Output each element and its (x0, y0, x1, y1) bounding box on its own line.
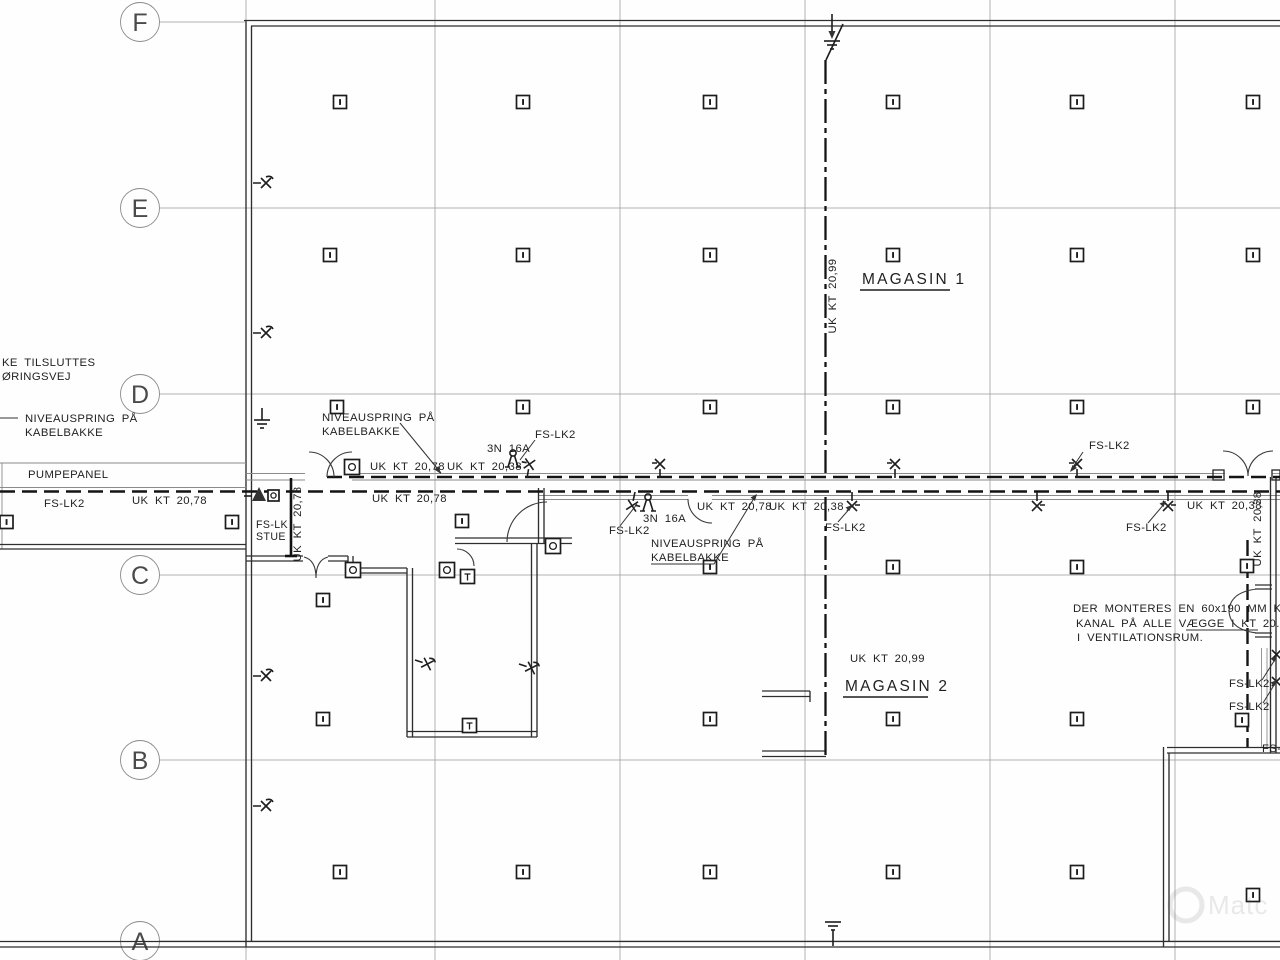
lighting-box-icon (0, 516, 13, 529)
leaders (0, 418, 1277, 703)
pumpepanel-label: PUMPEPANEL (28, 469, 108, 481)
walls (0, 21, 1280, 948)
lighting-box-icon (517, 249, 530, 262)
lighting-box-icon (1071, 401, 1084, 414)
lighting-box-icon (704, 713, 717, 726)
wall-fixture-icon (1032, 492, 1045, 511)
socket-box-icon (546, 539, 561, 554)
cable-trays (0, 60, 1280, 757)
earth-icon-bottom (825, 922, 841, 946)
lighting-box-icon (704, 249, 717, 262)
socket-box-icon (440, 563, 455, 578)
uk-kt-label: UK KT 20,78 (132, 495, 207, 507)
wall-fixture-icon (253, 799, 273, 811)
niveauspring-left-line1: NIVEAUSPRING PÅ (25, 412, 138, 425)
lighting-box-icon (887, 713, 900, 726)
lighting-box-icon (1247, 249, 1260, 262)
lighting-box-icon (1247, 401, 1260, 414)
wall-fixture-icon (652, 459, 665, 478)
lighting-box-icon (1071, 866, 1084, 879)
fs-lk2-label: FS-LK2 (825, 522, 866, 534)
lighting-box-icon (517, 401, 530, 414)
grid-label-c: C (131, 562, 149, 590)
edge-note-line1: KE TILSLUTTES (2, 357, 95, 369)
lighting-box-icon (704, 866, 717, 879)
floor-plan-svg: F E D C B A (0, 0, 1280, 960)
double-door-right-leaf2 (1248, 451, 1273, 476)
lighting-box-icon (887, 249, 900, 262)
uk-kt-label: UK KT 20,78 (697, 501, 772, 513)
uk-kt-label-rotated: UK KT 20,38 (1252, 492, 1264, 567)
room-title-magasin2: MAGASIN 2 (845, 678, 949, 695)
lighting-box-icon (317, 594, 330, 607)
double-door-right-leaf1 (1223, 451, 1248, 476)
lighting-box-icon (317, 713, 330, 726)
niveauspring-mid-line1: NIVEAUSPRING PÅ (322, 411, 435, 424)
edge-note-line2: ØRINGSVEJ (2, 371, 71, 383)
lighting-box-icon (1247, 96, 1260, 109)
grid-bubbles: F E D C B A (121, 3, 160, 960)
grid-label-d: D (131, 381, 149, 409)
lighting-box-icon (704, 96, 717, 109)
lighting-box-icon (887, 401, 900, 414)
lighting-box-icon (1071, 713, 1084, 726)
wall-fixture-icon (253, 176, 273, 188)
annotations: KE TILSLUTTES ØRINGSVEJ NIVEAUSPRING PÅ … (2, 259, 1280, 755)
fs-lk2-label: FS-LK2 (609, 525, 650, 537)
lighting-box-icon (517, 96, 530, 109)
uk-kt-label: UK KT 20,38 (447, 461, 522, 473)
uk-kt-label: UK KT 20,78 (370, 461, 445, 473)
lighting-box-icon (1071, 96, 1084, 109)
uk-kt-label: UK KT 20,78 (372, 493, 447, 505)
fs-lk2-label: FS-LK2 (1229, 678, 1270, 690)
door-room-southwest (507, 502, 547, 542)
niveauspring-center-line2: KABELBAKKE (651, 552, 729, 564)
fan-symbol (244, 487, 279, 501)
lighting-box-icon (887, 866, 900, 879)
t-box-icon (461, 570, 475, 584)
lighting-box-icon (456, 515, 469, 528)
earth-icon-left (254, 408, 270, 428)
lighting-box-icon (517, 866, 530, 879)
grid-label-b: B (132, 747, 149, 775)
lamp-icon (640, 494, 656, 511)
breaker-label: 3N 16A (643, 513, 686, 525)
kabelkanal-note-line2: KANAL PÅ ALLE VÆGGE I KT 20.38 (1076, 617, 1280, 630)
lighting-box-icon (334, 866, 347, 879)
lighting-box-icon (1071, 561, 1084, 574)
wall-fixture-icon (887, 459, 900, 478)
fs-lk-stue-line1: FS-LK (256, 519, 288, 531)
floor-plan-page: F E D C B A (0, 0, 1280, 960)
fs-lk2-label: FS-LK2 (44, 498, 85, 510)
door-u-room (457, 549, 474, 566)
t-box-icon (463, 719, 477, 733)
watermark-text: Matc (1208, 890, 1268, 920)
lighting-box-icon (887, 96, 900, 109)
fs-lk-stue-line2: STUE (256, 531, 286, 543)
kabelkanal-note-line1: DER MONTERES EN 60x190 MM KABEL- (1073, 603, 1280, 615)
uk-kt-label: UK KT 20,99 (850, 653, 925, 665)
wall-fixture-icon (253, 326, 273, 338)
room-title-magasin1: MAGASIN 1 (862, 271, 966, 288)
wall-fixture-icon (253, 669, 273, 681)
room-titles: MAGASIN 1 MAGASIN 2 (843, 271, 966, 697)
lighting-box-icon (1071, 249, 1084, 262)
breaker-label: 3N 16A (487, 443, 530, 455)
watermark: Matc (1170, 889, 1268, 921)
socket-box-icon (345, 460, 360, 475)
lighting-box-icon (704, 401, 717, 414)
lighting-box-icon (1236, 714, 1249, 727)
lighting-box-icon (226, 516, 239, 529)
fs-lk2-label: FS-LK2 (535, 429, 576, 441)
niveauspring-center-line1: NIVEAUSPRING PÅ (651, 537, 764, 550)
lighting-box-icon (887, 561, 900, 574)
lighting-box-icon (324, 249, 337, 262)
wall-fixture-icon (626, 491, 643, 512)
kabelkanal-note-line3: I VENTILATIONSRUM. (1077, 632, 1203, 644)
fs-lk2-label: FS-LK2 (1126, 522, 1167, 534)
grid-label-e: E (132, 195, 149, 223)
uk-kt-label: UK KT 20,38 (769, 501, 844, 513)
uk-kt-label-rotated: UK KT 20,78 (292, 487, 304, 562)
grid-label-f: F (132, 9, 147, 37)
fs-lk2-label-clipped: FS-LK2 (1262, 743, 1280, 755)
wall-fixture-icon (413, 654, 436, 671)
uk-kt-label: UK KT 20,38 (1187, 500, 1262, 512)
uk-kt-label-rotated: UK KT 20,99 (827, 259, 839, 334)
fs-lk2-label: FS-LK2 (1229, 701, 1270, 713)
socket-box-icon (346, 563, 361, 578)
lighting-box-icon (334, 96, 347, 109)
fs-lk2-label: FS-LK2 (1089, 440, 1130, 452)
niveauspring-left-line2: KABELBAKKE (25, 427, 103, 439)
niveauspring-mid-line2: KABELBAKKE (322, 426, 400, 438)
